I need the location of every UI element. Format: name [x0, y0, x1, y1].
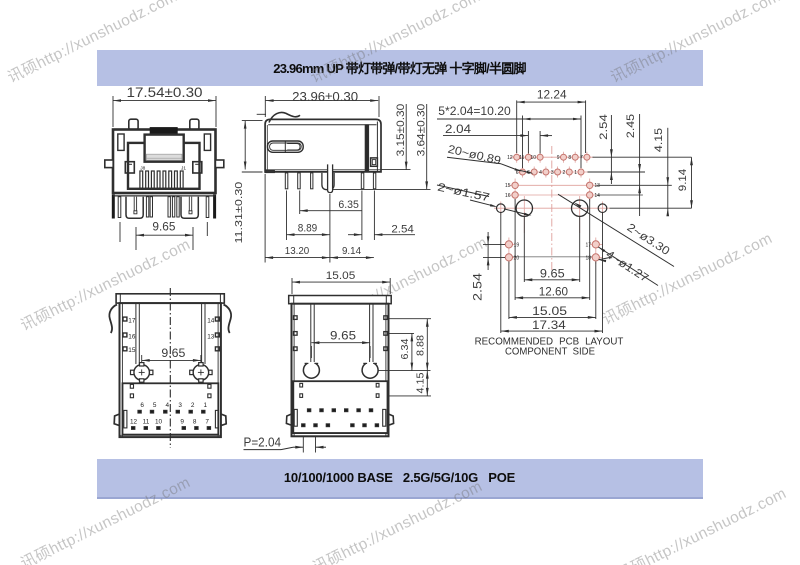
svg-text:9.14: 9.14	[677, 169, 689, 191]
svg-text:9.14: 9.14	[342, 245, 361, 257]
svg-text:讯硕http://xunshuodz.com: 讯硕http://xunshuodz.com	[310, 477, 486, 565]
svg-text:9: 9	[557, 155, 560, 161]
svg-text:J8: J8	[140, 165, 145, 171]
svg-text:13: 13	[594, 183, 600, 189]
svg-text:2.54: 2.54	[473, 272, 485, 301]
svg-text:3.15±0.30: 3.15±0.30	[395, 104, 407, 157]
svg-text:4: 4	[166, 402, 170, 409]
svg-text:4.15: 4.15	[414, 372, 426, 393]
svg-text:P=2.04: P=2.04	[244, 436, 282, 450]
svg-text:4~ø1.27: 4~ø1.27	[604, 249, 651, 285]
svg-text:讯硕http://xunshuodz.com: 讯硕http://xunshuodz.com	[308, 0, 484, 87]
svg-text:讯硕http://xunshuodz.com: 讯硕http://xunshuodz.com	[614, 484, 790, 565]
svg-text:4: 4	[539, 170, 542, 176]
svg-text:9.65: 9.65	[330, 329, 356, 343]
svg-text:12.24: 12.24	[537, 89, 567, 101]
svg-text:15.05: 15.05	[532, 304, 567, 318]
svg-text:20~ø0.89: 20~ø0.89	[447, 144, 502, 168]
svg-text:2.45: 2.45	[625, 114, 637, 138]
svg-text:8.89: 8.89	[298, 222, 318, 234]
svg-text:2: 2	[563, 170, 566, 176]
svg-text:15: 15	[505, 183, 511, 189]
svg-text:COMPONENT SIDE: COMPONENT SIDE	[505, 346, 595, 357]
svg-text:2: 2	[191, 402, 195, 409]
svg-text:2~ø1.57: 2~ø1.57	[436, 182, 490, 205]
svg-text:17: 17	[128, 317, 136, 324]
svg-text:8: 8	[193, 419, 197, 426]
svg-text:15: 15	[128, 347, 136, 354]
svg-text:12: 12	[507, 155, 513, 161]
svg-text:16: 16	[128, 333, 136, 340]
svg-text:16: 16	[505, 193, 511, 199]
svg-text:2.04: 2.04	[445, 124, 472, 136]
svg-text:1: 1	[574, 170, 577, 176]
svg-text:2.54: 2.54	[598, 114, 610, 140]
svg-text:讯硕http://xunshuodz.com: 讯硕http://xunshuodz.com	[5, 0, 181, 87]
svg-text:讯硕http://xunshuodz.com: 讯硕http://xunshuodz.com	[18, 473, 194, 565]
svg-text:4.15: 4.15	[653, 128, 665, 152]
svg-text:3: 3	[551, 170, 554, 176]
svg-text:11: 11	[519, 155, 524, 161]
svg-text:12: 12	[130, 419, 138, 426]
svg-text:1: 1	[204, 402, 208, 409]
svg-text:23.96±0.30: 23.96±0.30	[292, 89, 358, 104]
svg-text:J1: J1	[181, 165, 186, 171]
svg-text:8.88: 8.88	[414, 335, 426, 356]
svg-text:9.65: 9.65	[540, 266, 565, 280]
svg-text:15.05: 15.05	[326, 270, 356, 282]
svg-text:9.65: 9.65	[152, 220, 175, 234]
svg-text:13.20: 13.20	[285, 245, 310, 257]
svg-text:6.35: 6.35	[338, 199, 359, 211]
svg-text:5: 5	[153, 402, 157, 409]
svg-text:2.54: 2.54	[391, 223, 414, 235]
svg-text:6: 6	[140, 402, 144, 409]
svg-text:3.64±0.30: 3.64±0.30	[415, 104, 427, 157]
svg-text:13: 13	[207, 333, 215, 340]
svg-text:14: 14	[207, 317, 215, 324]
svg-text:17.34: 17.34	[532, 320, 566, 332]
svg-text:11.31±0.30: 11.31±0.30	[233, 182, 245, 244]
svg-text:8: 8	[568, 155, 571, 161]
svg-text:17.54±0.30: 17.54±0.30	[127, 85, 203, 100]
svg-text:讯硕http://xunshuodz.com: 讯硕http://xunshuodz.com	[600, 229, 776, 329]
svg-text:9.65: 9.65	[161, 346, 185, 360]
svg-text:17: 17	[586, 242, 592, 248]
svg-text:3: 3	[178, 402, 182, 409]
svg-text:14: 14	[594, 193, 600, 199]
svg-text:10: 10	[155, 419, 163, 426]
svg-text:18: 18	[586, 255, 592, 261]
svg-text:10: 10	[531, 155, 537, 161]
svg-text:5*2.04=10.20: 5*2.04=10.20	[438, 106, 510, 118]
svg-text:12.60: 12.60	[539, 286, 568, 298]
svg-text:6.34: 6.34	[399, 338, 411, 359]
svg-text:7: 7	[205, 419, 209, 426]
svg-text:20: 20	[514, 255, 520, 261]
svg-text:9: 9	[180, 419, 184, 426]
svg-text:19: 19	[514, 242, 520, 248]
svg-text:讯硕http://xunshuodz.com: 讯硕http://xunshuodz.com	[608, 0, 784, 87]
svg-text:11: 11	[143, 419, 150, 426]
